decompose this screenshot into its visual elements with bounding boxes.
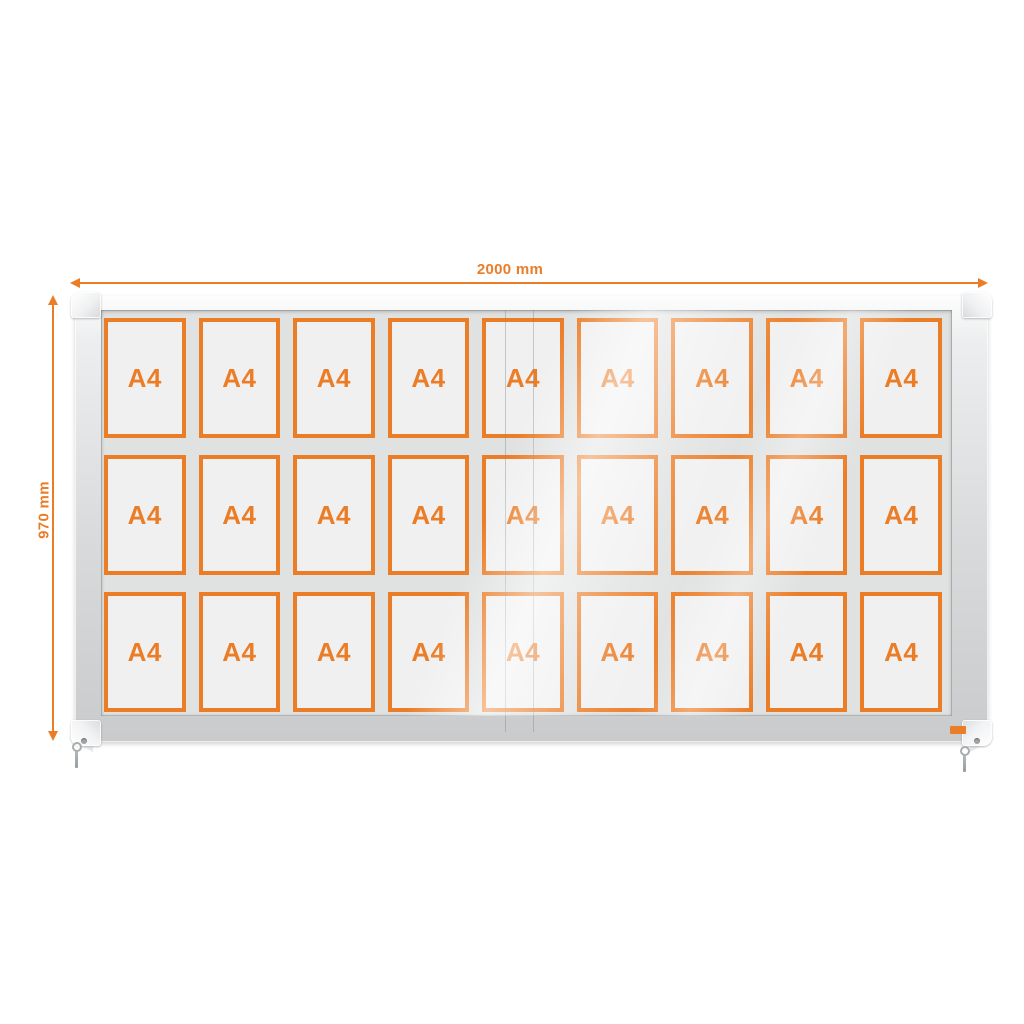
- a4-slot: A4: [104, 318, 186, 438]
- a4-slot: A4: [104, 455, 186, 575]
- a4-slot: A4: [199, 318, 281, 438]
- a4-slot-label: A4: [128, 500, 162, 531]
- a4-slot-label: A4: [222, 637, 256, 668]
- a4-slot-label: A4: [128, 363, 162, 394]
- brand-logo-icon: [950, 726, 966, 734]
- a4-grid: A4A4A4A4A4A4A4A4A4A4A4A4A4A4A4A4A4A4A4A4…: [104, 318, 942, 712]
- a4-slot-label: A4: [884, 637, 918, 668]
- glass-door-seam-right: [533, 310, 534, 732]
- a4-slot-label: A4: [506, 363, 540, 394]
- a4-slot: A4: [104, 592, 186, 712]
- glass-door-seam-left: [505, 310, 506, 732]
- a4-slot-label: A4: [222, 500, 256, 531]
- a4-slot-label: A4: [411, 637, 445, 668]
- a4-slot: A4: [293, 455, 375, 575]
- a4-slot: A4: [388, 455, 470, 575]
- a4-slot-label: A4: [790, 637, 824, 668]
- a4-slot-label: A4: [600, 637, 634, 668]
- a4-slot: A4: [860, 318, 942, 438]
- a4-slot-label: A4: [695, 500, 729, 531]
- a4-slot-label: A4: [695, 637, 729, 668]
- a4-slot-label: A4: [506, 637, 540, 668]
- a4-slot: A4: [293, 592, 375, 712]
- a4-slot-label: A4: [317, 637, 351, 668]
- a4-slot: A4: [388, 318, 470, 438]
- a4-slot: A4: [388, 592, 470, 712]
- a4-slot: A4: [293, 318, 375, 438]
- a4-slot: A4: [482, 592, 564, 712]
- a4-slot: A4: [577, 592, 659, 712]
- a4-slot: A4: [766, 592, 848, 712]
- a4-slot-label: A4: [411, 500, 445, 531]
- a4-slot-label: A4: [317, 363, 351, 394]
- a4-slot-label: A4: [884, 363, 918, 394]
- a4-slot-label: A4: [884, 500, 918, 531]
- height-dimension-label: 970 mm: [36, 481, 53, 539]
- a4-slot: A4: [577, 455, 659, 575]
- a4-slot: A4: [482, 318, 564, 438]
- display-cabinet: A4A4A4A4A4A4A4A4A4A4A4A4A4A4A4A4A4A4A4A4…: [75, 296, 988, 742]
- a4-slot: A4: [766, 455, 848, 575]
- a4-slot-label: A4: [222, 363, 256, 394]
- a4-slot: A4: [671, 455, 753, 575]
- a4-slot-label: A4: [317, 500, 351, 531]
- a4-slot-label: A4: [600, 500, 634, 531]
- a4-slot: A4: [860, 592, 942, 712]
- key-icon: [963, 754, 966, 772]
- height-dimension-arrow: [52, 305, 54, 731]
- a4-slot: A4: [860, 455, 942, 575]
- a4-slot-label: A4: [411, 363, 445, 394]
- lock-icon: [81, 738, 87, 744]
- lock-icon: [974, 738, 980, 744]
- key-icon: [75, 750, 78, 768]
- corner-cap-top-left: [71, 292, 101, 318]
- a4-slot: A4: [199, 592, 281, 712]
- product-dimension-diagram: 2000 mm 970 mm A4A4A4A4A4A4A4A4A4A4A4A4A…: [0, 0, 1024, 1024]
- corner-cap-bottom-right: [962, 720, 992, 746]
- a4-slot-label: A4: [695, 363, 729, 394]
- corner-cap-top-right: [962, 292, 992, 318]
- a4-slot: A4: [577, 318, 659, 438]
- a4-slot-label: A4: [128, 637, 162, 668]
- a4-slot: A4: [482, 455, 564, 575]
- a4-slot-label: A4: [790, 500, 824, 531]
- a4-slot: A4: [199, 455, 281, 575]
- a4-slot: A4: [766, 318, 848, 438]
- a4-slot-label: A4: [600, 363, 634, 394]
- a4-slot-label: A4: [790, 363, 824, 394]
- a4-slot-label: A4: [506, 500, 540, 531]
- width-dimension-label: 2000 mm: [477, 261, 543, 278]
- width-dimension-arrow: [80, 282, 978, 284]
- a4-slot: A4: [671, 592, 753, 712]
- a4-slot: A4: [671, 318, 753, 438]
